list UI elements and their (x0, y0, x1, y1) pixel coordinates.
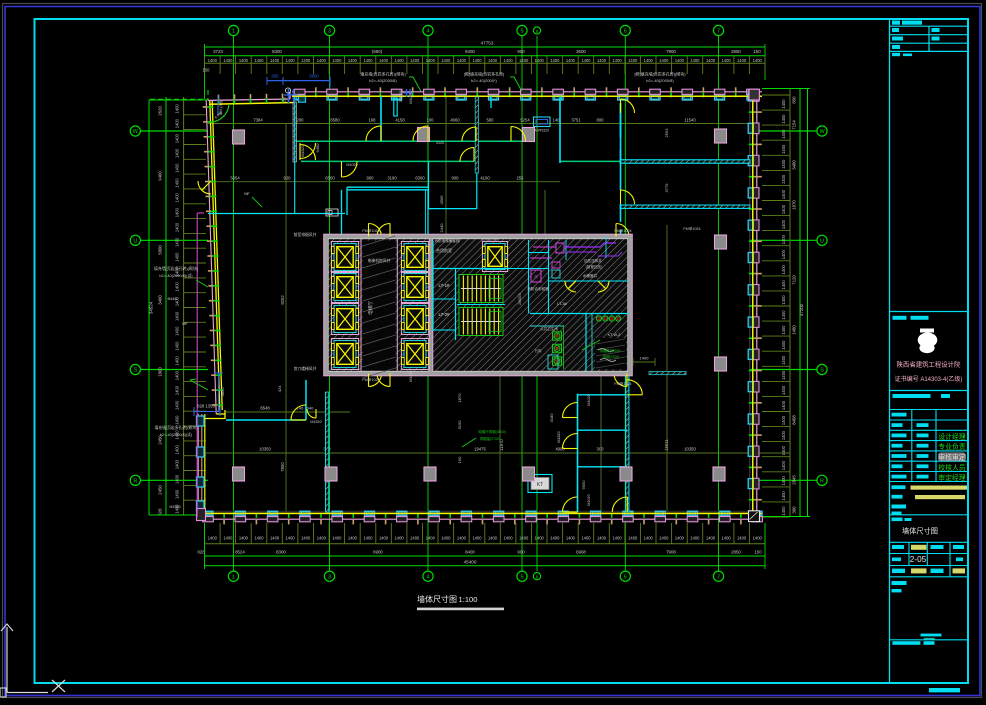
svg-text:4158: 4158 (395, 118, 405, 123)
svg-text:3800: 3800 (220, 387, 225, 397)
svg-text:168: 168 (369, 118, 377, 123)
svg-text:1400: 1400 (239, 536, 249, 541)
svg-text:1400: 1400 (175, 311, 180, 321)
svg-text:M1020: M1020 (409, 92, 413, 103)
svg-text:U: U (133, 239, 137, 245)
svg-text:FM甲1024: FM甲1024 (614, 228, 631, 233)
svg-text:1400: 1400 (628, 536, 638, 541)
svg-text:电梯机房风井: 电梯机房风井 (368, 258, 391, 263)
svg-text:8400: 8400 (465, 49, 475, 54)
svg-text:900: 900 (517, 550, 525, 555)
svg-text:1400: 1400 (175, 237, 180, 247)
svg-text:6: 6 (536, 575, 539, 580)
svg-text:24X300: 24X300 (518, 293, 522, 305)
svg-text:1: 1 (232, 574, 235, 580)
svg-text:(前室加压): (前室加压) (586, 264, 603, 269)
svg-text:排烟(2700): 排烟(2700) (603, 354, 620, 359)
svg-text:4100: 4100 (480, 176, 490, 181)
svg-text:1400: 1400 (348, 536, 358, 541)
svg-text:150: 150 (754, 550, 762, 555)
svg-text:填充墙(页岩多孔砖)(砌块): 填充墙(页岩多孔砖)(砌块) (154, 425, 198, 430)
svg-text:LT-1#: LT-1# (439, 283, 450, 288)
svg-text:7: 7 (717, 29, 720, 35)
svg-text:墙体尺寸图: 墙体尺寸图 (417, 594, 457, 604)
svg-text:5850: 5850 (309, 74, 319, 79)
svg-text:1: 1 (232, 29, 235, 35)
svg-text:M##1520: M##1520 (535, 129, 549, 133)
svg-text:850: 850 (792, 96, 797, 104)
svg-text:140: 140 (553, 118, 561, 123)
svg-text:1400: 1400 (208, 536, 218, 541)
svg-text:1400: 1400 (781, 385, 786, 395)
svg-text:1400: 1400 (472, 58, 482, 63)
svg-text:3723: 3723 (213, 49, 223, 54)
svg-text:1400: 1400 (175, 356, 180, 366)
svg-text:1400: 1400 (613, 536, 623, 541)
svg-text:M1820: M1820 (557, 431, 561, 442)
svg-text:消防合用前室: 消防合用前室 (527, 286, 549, 291)
svg-text:电梯厅: 电梯厅 (367, 301, 374, 315)
svg-text:1400: 1400 (379, 58, 389, 63)
svg-text:(690): (690) (372, 49, 383, 54)
svg-text:1400: 1400 (597, 536, 607, 541)
svg-text:384 (45): 384 (45) (219, 100, 223, 115)
svg-text:47753: 47753 (481, 41, 494, 46)
svg-text:M1520: M1520 (310, 420, 321, 424)
svg-text:MF: MF (182, 321, 188, 326)
svg-text:消防电梯兼客梯: 消防电梯兼客梯 (434, 238, 460, 243)
svg-text:1400: 1400 (781, 430, 786, 440)
svg-text:[砌]填充墙[页岩多孔砖](砌块): [砌]填充墙[页岩多孔砖](砌块) (634, 71, 686, 77)
svg-text:1400: 1400 (781, 114, 786, 124)
svg-text:1400: 1400 (581, 58, 591, 63)
svg-text:2850: 2850 (731, 49, 741, 54)
svg-text:3779: 3779 (664, 183, 669, 193)
svg-text:1400: 1400 (781, 506, 786, 516)
svg-text:1400: 1400 (753, 58, 763, 63)
svg-text:1400: 1400 (208, 58, 218, 63)
svg-text:1400: 1400 (781, 189, 786, 199)
svg-text:1400: 1400 (286, 58, 296, 63)
svg-text:320(20): 320(20) (399, 90, 403, 102)
svg-text:1400: 1400 (410, 58, 420, 63)
svg-text:1400: 1400 (175, 385, 180, 395)
svg-text:R: R (820, 479, 824, 485)
svg-text:7120: 7120 (792, 275, 797, 285)
svg-text:前室排烟风井: 前室排烟风井 (294, 232, 317, 237)
svg-text:1400: 1400 (332, 536, 342, 541)
svg-text:墙体尺寸图: 墙体尺寸图 (902, 527, 938, 536)
svg-text:7154: 7154 (792, 120, 797, 130)
svg-text:1400: 1400 (239, 58, 249, 63)
svg-text:审定经理: 审定经理 (938, 473, 965, 482)
svg-text:万向: 万向 (535, 348, 542, 353)
svg-text:1400: 1400 (286, 536, 296, 541)
svg-text:1400: 1400 (348, 58, 358, 63)
svg-text:580: 580 (487, 118, 495, 123)
svg-text:1400: 1400 (363, 536, 373, 541)
svg-text:5: 5 (521, 29, 524, 35)
svg-text:1400: 1400 (519, 58, 529, 63)
svg-text:900: 900 (367, 176, 375, 181)
svg-text:2553: 2553 (664, 128, 669, 138)
svg-text:828 1353: 828 1353 (197, 404, 215, 409)
svg-text:828: 828 (158, 508, 163, 516)
svg-text:10350: 10350 (684, 447, 696, 452)
svg-text:1400: 1400 (472, 536, 482, 541)
svg-text:8300: 8300 (272, 49, 282, 54)
svg-text:3190: 3190 (387, 176, 397, 181)
svg-text:6500: 6500 (325, 176, 335, 181)
svg-text:KT: KT (537, 482, 543, 488)
svg-text:1400: 1400 (722, 58, 732, 63)
svg-text:1400: 1400 (690, 58, 700, 63)
svg-text:300: 300 (597, 447, 605, 452)
svg-text:1400: 1400 (675, 536, 685, 541)
svg-text:350: 350 (272, 74, 280, 79)
svg-text:1400: 1400 (781, 400, 786, 410)
svg-text:1400: 1400 (781, 295, 786, 305)
svg-text:专业负责: 专业负责 (938, 442, 965, 451)
svg-text:1400: 1400 (175, 178, 180, 188)
svg-text:150: 150 (283, 97, 287, 103)
svg-text:FM甲1024: FM甲1024 (614, 381, 631, 386)
svg-text:1400: 1400 (706, 58, 716, 63)
svg-text:填充墙(页岩多孔砖)(砌块): 填充墙(页岩多孔砖)(砌块) (360, 71, 406, 77)
svg-text:1870: 1870 (792, 200, 797, 210)
svg-text:M1520: M1520 (169, 505, 180, 509)
svg-text:合用前室: 合用前室 (436, 247, 452, 253)
svg-text:1400: 1400 (395, 536, 405, 541)
svg-text:B448: B448 (167, 296, 176, 301)
svg-text:19475: 19475 (474, 447, 486, 452)
svg-text:1:100: 1:100 (458, 595, 477, 604)
svg-text:1480: 1480 (792, 325, 797, 335)
svg-text:1400: 1400 (781, 219, 786, 229)
svg-text:设计经理: 设计经理 (938, 432, 965, 441)
svg-text:M1020: M1020 (587, 494, 591, 505)
svg-text:1400: 1400 (706, 536, 716, 541)
svg-text:[砌]填充墙[页岩多孔砖]: [砌]填充墙[页岩多孔砖] (464, 71, 504, 77)
svg-text:1400: 1400 (175, 207, 180, 217)
svg-text:45400: 45400 (464, 560, 477, 565)
svg-text:6900: 6900 (373, 550, 383, 555)
svg-text:1400: 1400 (504, 58, 514, 63)
svg-text:剪刀楼梯风井: 剪刀楼梯风井 (294, 366, 317, 371)
svg-text:2620: 2620 (158, 106, 163, 116)
svg-text:5054: 5054 (230, 176, 240, 181)
svg-text:1400: 1400 (426, 536, 436, 541)
svg-text:1400: 1400 (175, 104, 180, 114)
svg-text:9252: 9252 (280, 295, 285, 305)
svg-text:1400: 1400 (781, 174, 786, 184)
svg-text:1400: 1400 (690, 536, 700, 541)
svg-text:1400: 1400 (457, 536, 467, 541)
svg-text:1400: 1400 (175, 415, 180, 425)
svg-text:b2=-40(2000/8): b2=-40(2000/8) (646, 78, 674, 83)
svg-text:37200: 37200 (799, 303, 804, 316)
svg-text:2845: 2845 (792, 475, 797, 485)
svg-text:1870: 1870 (457, 393, 462, 403)
svg-text:6: 6 (536, 29, 539, 34)
svg-text:M1020: M1020 (346, 163, 357, 167)
svg-text:255: 255 (517, 176, 525, 181)
svg-text:LT-2#: LT-2# (439, 312, 450, 317)
svg-text:1400: 1400 (504, 536, 514, 541)
svg-text:排烟风井2000: 排烟风井2000 (599, 348, 620, 353)
svg-text:1400: 1400 (363, 58, 373, 63)
svg-text:4: 4 (427, 574, 430, 580)
svg-text:16511: 16511 (664, 439, 669, 451)
svg-text:150: 150 (457, 456, 462, 463)
svg-text:1400: 1400 (223, 536, 233, 541)
svg-text:1400: 1400 (535, 536, 545, 541)
svg-text:1400: 1400 (781, 445, 786, 455)
svg-text:900: 900 (452, 176, 460, 181)
svg-text:6548: 6548 (260, 406, 270, 411)
svg-text:1400: 1400 (781, 234, 786, 244)
svg-text:1400: 1400 (566, 58, 576, 63)
svg-text:1400: 1400 (488, 536, 498, 541)
svg-text:3: 3 (328, 574, 331, 580)
svg-text:1400: 1400 (550, 536, 560, 541)
svg-text:8524: 8524 (235, 550, 245, 555)
svg-text:1400: 1400 (640, 356, 650, 361)
svg-text:4120: 4120 (436, 141, 444, 145)
svg-text:3751: 3751 (571, 118, 581, 123)
svg-text:1400: 1400 (175, 445, 180, 455)
svg-text:M1820: M1820 (301, 145, 305, 156)
svg-text:1400: 1400 (175, 489, 180, 499)
svg-text:2850: 2850 (731, 550, 741, 555)
svg-text:水暖管井: 水暖管井 (583, 273, 598, 278)
svg-text:证书编号 A14303-4(乙级): 证书编号 A14303-4(乙级) (895, 375, 963, 383)
svg-text:5800: 5800 (158, 245, 163, 255)
svg-text:11540: 11540 (684, 118, 696, 123)
svg-text:8400: 8400 (465, 550, 475, 555)
svg-text:900: 900 (517, 49, 525, 54)
svg-text:1400: 1400 (566, 536, 576, 541)
svg-text:1400: 1400 (644, 58, 654, 63)
svg-text:10350: 10350 (259, 447, 271, 452)
svg-text:100: 100 (427, 118, 435, 123)
svg-text:150: 150 (203, 68, 211, 73)
svg-text:5: 5 (521, 574, 524, 580)
svg-text:加压送风井: 加压送风井 (584, 258, 602, 263)
svg-text:6908: 6908 (576, 550, 586, 555)
svg-text:800: 800 (597, 118, 605, 123)
svg-text:34524: 34524 (149, 301, 154, 314)
svg-text:电梯厅排烟(3500): 电梯厅排烟(3500) (478, 429, 506, 434)
svg-text:1400: 1400 (175, 341, 180, 351)
svg-text:7: 7 (717, 574, 720, 580)
svg-text:1400: 1400 (175, 118, 180, 128)
svg-text:FM甲1024: FM甲1024 (683, 226, 700, 231)
svg-text:S: S (133, 368, 137, 374)
svg-text:1400: 1400 (301, 536, 311, 541)
svg-text:1400: 1400 (644, 536, 654, 541)
svg-text:4506: 4506 (439, 195, 444, 205)
svg-text:1400: 1400 (781, 265, 786, 275)
svg-text:1400: 1400 (175, 148, 180, 158)
svg-text:1400: 1400 (175, 163, 180, 173)
svg-text:1400: 1400 (628, 58, 638, 63)
svg-text:FM甲1024: FM甲1024 (362, 228, 379, 233)
svg-text:1400: 1400 (737, 536, 747, 541)
svg-text:5254: 5254 (520, 118, 530, 123)
svg-text:9550: 9550 (581, 480, 586, 490)
svg-text:424: 424 (277, 385, 282, 392)
svg-text:M1020: M1020 (587, 394, 591, 405)
svg-text:排烟量(2700): 排烟量(2700) (480, 436, 501, 441)
svg-text:1400: 1400 (270, 536, 280, 541)
svg-text:200: 200 (297, 118, 305, 123)
svg-text:1400: 1400 (441, 536, 451, 541)
svg-text:1400: 1400 (781, 325, 786, 335)
svg-text:8300: 8300 (276, 550, 286, 555)
svg-text:1400: 1400 (254, 58, 264, 63)
svg-text:1400: 1400 (781, 280, 786, 290)
svg-text:1400: 1400 (613, 58, 623, 63)
svg-text:b2=-40(2000/8)(试): b2=-40(2000/8)(试) (160, 432, 193, 437)
svg-text:2440: 2440 (439, 223, 444, 233)
svg-text:1400: 1400 (175, 459, 180, 469)
svg-text:1400: 1400 (781, 491, 786, 501)
svg-text:300: 300 (792, 506, 797, 514)
svg-text:6: 6 (624, 29, 627, 35)
svg-text:1400: 1400 (457, 58, 467, 63)
svg-text:3480: 3480 (792, 160, 797, 170)
svg-text:1400: 1400 (581, 536, 591, 541)
svg-text:填充墙(页岩多孔砖)(砌块): 填充墙(页岩多孔砖)(砌块) (154, 266, 199, 271)
svg-text:7900: 7900 (666, 49, 676, 54)
svg-text:900: 900 (284, 176, 292, 181)
svg-text:1400: 1400 (535, 58, 545, 63)
svg-text:8408: 8408 (792, 415, 797, 425)
svg-text:1400: 1400 (175, 282, 180, 292)
svg-text:1400: 1400 (441, 58, 451, 63)
svg-text:1400: 1400 (175, 252, 180, 262)
svg-text:1400: 1400 (781, 355, 786, 365)
svg-text:1400: 1400 (395, 58, 405, 63)
svg-text:2-05: 2-05 (910, 555, 927, 564)
svg-text:2450: 2450 (158, 485, 163, 495)
svg-text:b2=-40(2000/8)(试): b2=-40(2000/8)(试) (159, 273, 193, 278)
svg-text:1400: 1400 (737, 58, 747, 63)
svg-text:3400: 3400 (158, 295, 163, 305)
svg-text:MF: MF (244, 191, 250, 196)
svg-text:1400: 1400 (550, 58, 560, 63)
svg-text:8200(2000): 8200(2000) (481, 238, 498, 242)
svg-text:1800: 1800 (158, 367, 163, 377)
svg-text:1400: 1400 (675, 58, 685, 63)
svg-text:校核人员: 校核人员 (938, 463, 965, 472)
svg-text:1400: 1400 (175, 400, 180, 410)
svg-text:7384: 7384 (253, 118, 263, 123)
svg-text:6580: 6580 (330, 118, 340, 123)
svg-text:1400: 1400 (781, 340, 786, 350)
svg-text:1400: 1400 (659, 536, 669, 541)
svg-text:1400: 1400 (519, 536, 529, 541)
svg-text:1400: 1400 (781, 204, 786, 214)
svg-text:1400: 1400 (175, 370, 180, 380)
svg-text:KT W-2: KT W-2 (608, 333, 621, 337)
svg-text:1400: 1400 (175, 133, 180, 143)
svg-text:4: 4 (427, 29, 430, 35)
svg-text:1400: 1400 (175, 222, 180, 232)
svg-text:1400: 1400 (781, 460, 786, 470)
svg-text:1400: 1400 (659, 58, 669, 63)
svg-text:3: 3 (328, 29, 331, 35)
svg-text:1400: 1400 (781, 129, 786, 139)
svg-text:1400: 1400 (254, 536, 264, 541)
svg-text:7908: 7908 (666, 550, 676, 555)
svg-text:U: U (820, 239, 824, 245)
svg-text:1400: 1400 (175, 474, 180, 484)
svg-text:公共卫生间: 公共卫生间 (540, 326, 558, 331)
svg-text:3180: 3180 (549, 413, 554, 423)
svg-text:9400: 9400 (158, 171, 163, 181)
svg-text:1400: 1400 (332, 58, 342, 63)
svg-text:1400: 1400 (722, 536, 732, 541)
svg-text:1400: 1400 (781, 159, 786, 169)
svg-text:7800: 7800 (280, 462, 285, 472)
svg-text:1400: 1400 (175, 193, 180, 203)
svg-text:1400: 1400 (410, 536, 420, 541)
svg-text:1400: 1400 (781, 99, 786, 109)
svg-text:1400: 1400 (379, 536, 389, 541)
svg-text:3600: 3600 (576, 49, 586, 54)
svg-text:1400: 1400 (781, 370, 786, 380)
svg-text:1400: 1400 (781, 144, 786, 154)
svg-text:1400: 1400 (781, 415, 786, 425)
svg-text:3190: 3190 (457, 420, 462, 430)
svg-text:1400: 1400 (223, 58, 233, 63)
svg-text:1400: 1400 (781, 310, 786, 320)
svg-text:1400: 1400 (426, 58, 436, 63)
svg-text:1400: 1400 (488, 58, 498, 63)
svg-text:1400: 1400 (597, 58, 607, 63)
svg-text:M1020: M1020 (409, 370, 413, 381)
svg-text:1400: 1400 (317, 536, 327, 541)
svg-text:1400: 1400 (175, 326, 180, 336)
svg-text:FM甲1024: FM甲1024 (362, 377, 379, 382)
svg-text:150: 150 (753, 49, 761, 54)
svg-text:b2=-40(2000/8): b2=-40(2000/8) (369, 78, 397, 83)
svg-text:1400: 1400 (781, 476, 786, 486)
svg-text:LT-3#: LT-3# (557, 302, 567, 306)
svg-text:1400: 1400 (753, 536, 763, 541)
svg-text:1400: 1400 (317, 58, 327, 63)
svg-text:W: W (133, 129, 139, 135)
svg-text:828: 828 (197, 550, 205, 555)
svg-text:6: 6 (624, 574, 627, 580)
svg-text:4060: 4060 (450, 118, 460, 123)
svg-text:1400: 1400 (781, 249, 786, 259)
svg-text:陕西省建筑工程设计院: 陕西省建筑工程设计院 (897, 360, 962, 369)
svg-text:1400: 1400 (301, 58, 311, 63)
svg-text:R: R (133, 479, 137, 485)
svg-text:6300: 6300 (415, 176, 425, 181)
svg-text:S: S (820, 368, 824, 374)
svg-text:b2=-40(2000*): b2=-40(2000*) (471, 78, 497, 83)
svg-text:1400: 1400 (270, 58, 280, 63)
